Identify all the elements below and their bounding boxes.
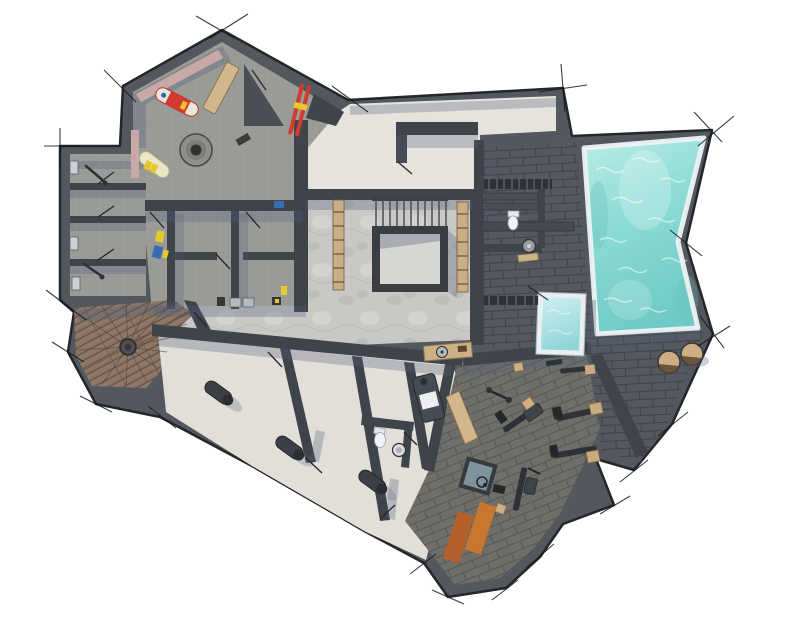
sauna-bench bbox=[482, 203, 538, 210]
wood-ladder bbox=[333, 200, 344, 290]
gym-machine-pad bbox=[585, 364, 596, 374]
interior-wall bbox=[470, 197, 484, 345]
shadow bbox=[588, 300, 596, 354]
plunge-pool-water bbox=[541, 297, 581, 350]
interior-wall bbox=[396, 122, 478, 135]
storage-bin bbox=[230, 298, 241, 307]
sauna-bench bbox=[482, 193, 538, 200]
floor-drain bbox=[191, 145, 202, 156]
locker-partition bbox=[243, 252, 303, 260]
barbell-plate bbox=[506, 397, 512, 403]
interior-wall bbox=[474, 140, 484, 200]
locker-partition bbox=[231, 211, 239, 309]
storage-bin bbox=[243, 298, 254, 307]
gym-machine-pad bbox=[589, 402, 603, 415]
pool-light-patch bbox=[608, 280, 652, 320]
sink-drain bbox=[441, 351, 444, 354]
sauna-bench bbox=[482, 222, 574, 231]
storage-partition bbox=[70, 183, 146, 190]
wall-bench-pink bbox=[131, 130, 139, 178]
gym-machine-pad bbox=[586, 450, 600, 463]
sauna-partition bbox=[538, 188, 545, 248]
toilet-bowl bbox=[508, 216, 518, 230]
ski-boot bbox=[281, 286, 287, 295]
wall-box bbox=[70, 161, 78, 174]
storage-partition bbox=[70, 259, 146, 266]
shadow bbox=[70, 190, 146, 198]
gym-stool bbox=[513, 362, 523, 371]
shadow bbox=[306, 200, 472, 210]
shadow bbox=[175, 214, 184, 306]
ski-boot bbox=[274, 201, 284, 208]
wood-ladder bbox=[457, 202, 468, 292]
counter-object bbox=[458, 345, 467, 352]
shadow bbox=[239, 214, 248, 306]
shadow bbox=[145, 211, 303, 222]
sink-basin bbox=[396, 447, 402, 453]
shadow bbox=[448, 230, 457, 298]
toilet-bowl bbox=[375, 433, 386, 448]
side-table bbox=[527, 244, 531, 248]
floorplan-stage bbox=[0, 0, 800, 640]
storage-rod bbox=[100, 275, 105, 280]
ski-boot bbox=[217, 297, 225, 306]
spiral-stair-post bbox=[125, 344, 131, 350]
pool-light-patch bbox=[619, 150, 671, 230]
barbell-plate bbox=[486, 387, 492, 393]
table-object bbox=[483, 483, 487, 487]
shadow bbox=[70, 223, 146, 231]
storage-rod bbox=[103, 181, 108, 186]
wall-box bbox=[72, 277, 80, 290]
floorplan-svg bbox=[0, 0, 800, 640]
sauna-railing bbox=[484, 296, 538, 305]
shadow bbox=[70, 266, 146, 274]
storage-partition bbox=[70, 216, 146, 223]
locker-partition bbox=[167, 211, 175, 309]
wall-box bbox=[70, 237, 78, 250]
ski-boot bbox=[275, 299, 279, 303]
